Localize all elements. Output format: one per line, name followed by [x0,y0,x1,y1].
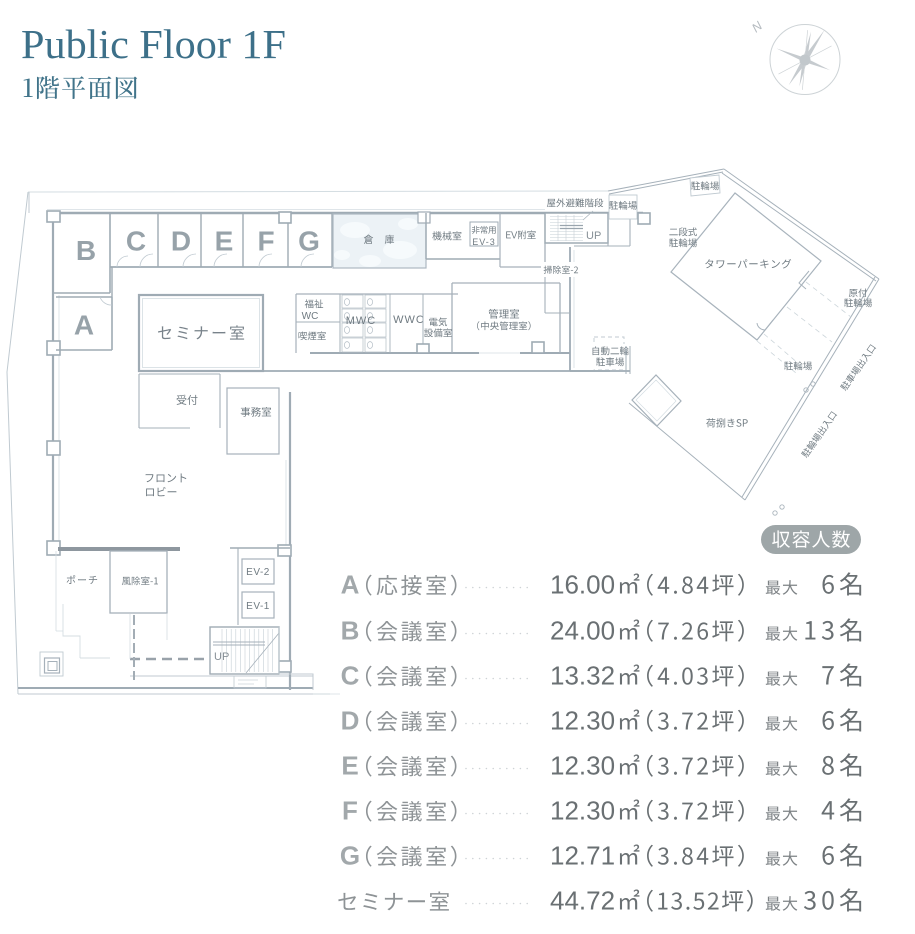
svg-text:12.30: 12.30 [550,796,615,826]
svg-text:UP: UP [586,230,601,242]
svg-text:D: D [341,706,360,736]
svg-text:G: G [340,841,360,871]
svg-text:MWC: MWC [346,315,377,327]
svg-text:UP: UP [214,651,229,663]
svg-text:Public Floor 1F: Public Floor 1F [21,21,286,67]
svg-text:G: G [298,226,320,257]
svg-text:44.72: 44.72 [550,886,615,916]
svg-text:F: F [342,796,358,826]
svg-text:EV-1: EV-1 [246,601,270,612]
svg-text:WC: WC [302,311,319,322]
svg-text:13.32: 13.32 [550,661,615,691]
svg-text:E: E [215,226,234,257]
svg-text:EV-2: EV-2 [246,567,270,578]
svg-text:B: B [76,235,96,266]
svg-text:A: A [341,570,360,600]
svg-text:D: D [171,226,191,257]
svg-text:A: A [74,310,94,341]
svg-text:E: E [341,751,358,781]
svg-text:B: B [341,616,360,646]
svg-text:12.30: 12.30 [550,706,615,736]
svg-text:F: F [257,226,274,257]
svg-text:12.30: 12.30 [550,751,615,781]
svg-text:WWC: WWC [393,314,425,326]
svg-text:N: N [749,18,765,35]
svg-text:24.00: 24.00 [550,616,615,646]
svg-text:C: C [126,226,146,257]
svg-text:16.00: 16.00 [550,570,615,600]
svg-text:C: C [341,661,360,691]
svg-text:EV-3: EV-3 [472,237,496,247]
svg-text:12.71: 12.71 [550,841,615,871]
